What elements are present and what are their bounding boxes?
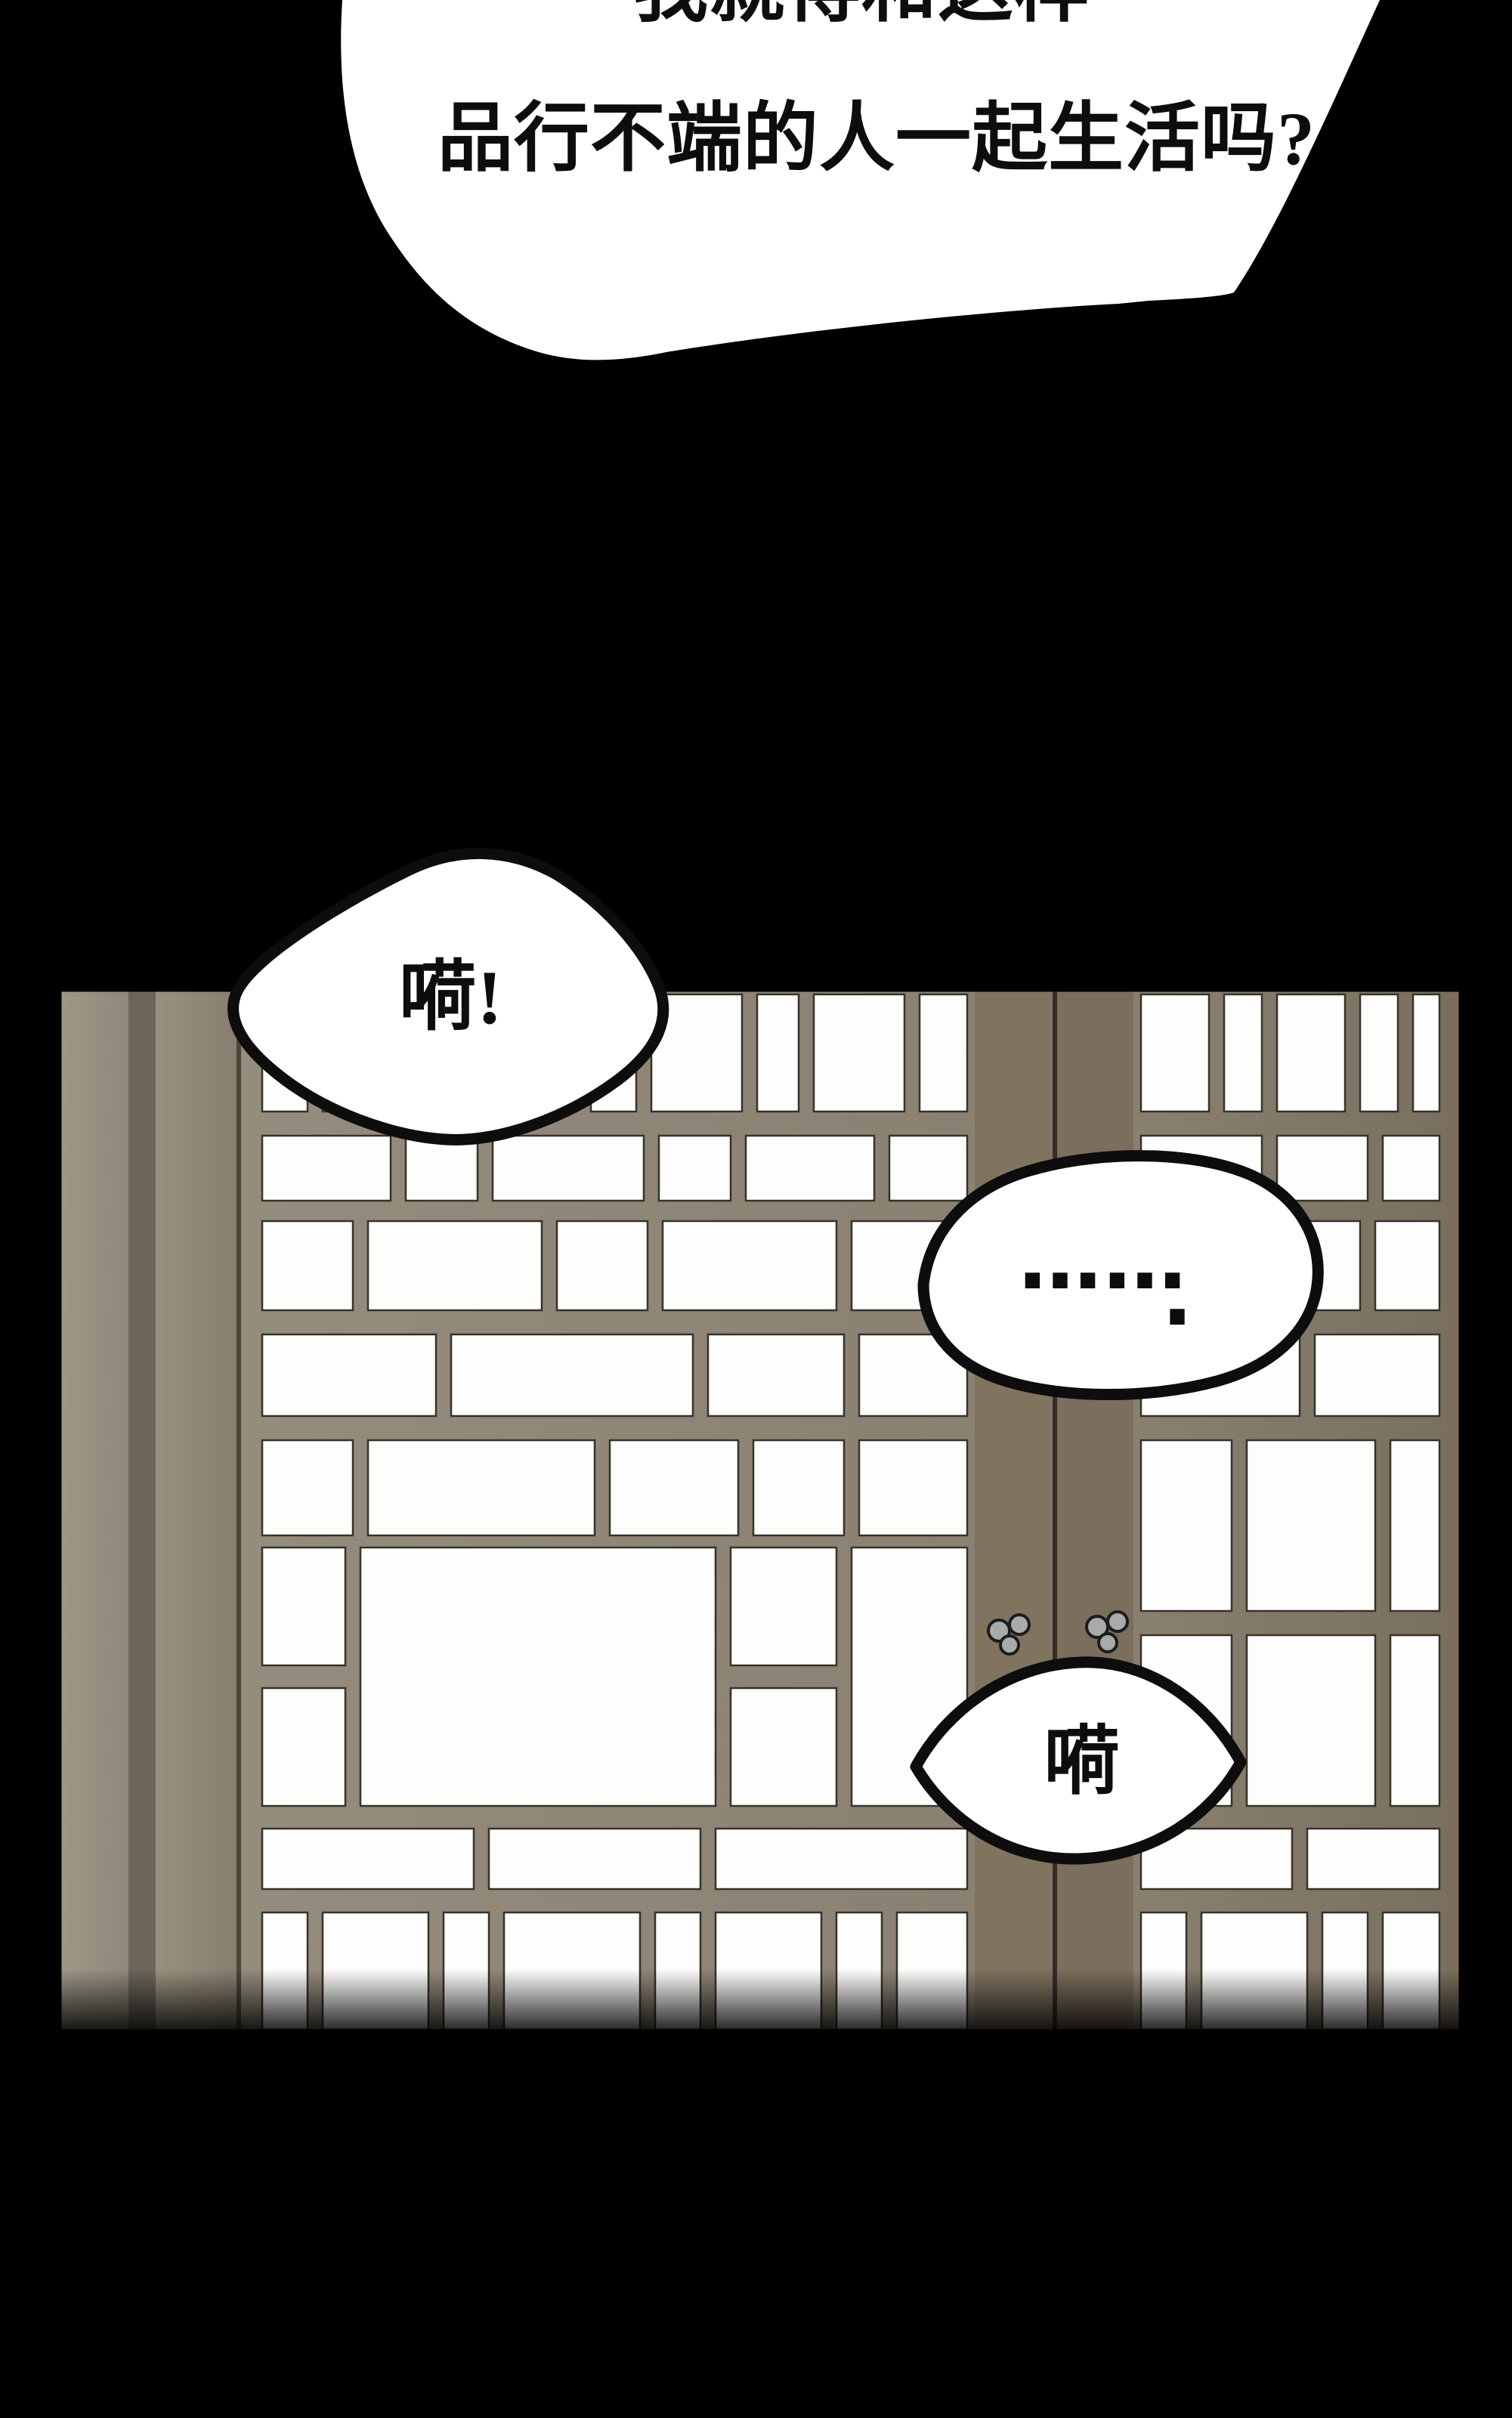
huff-bubble-text: 嗬 [969, 1721, 1195, 1803]
top-speech-bubble-shape [0, 0, 1512, 423]
top-bubble-line2: 品行不端的人一起生活吗? [385, 98, 1368, 180]
silence-bubble-period: . [1155, 1254, 1200, 1337]
left-post [57, 987, 128, 2034]
door-knob [1010, 1615, 1029, 1634]
bottom-shadow [57, 1969, 1464, 2034]
left-post-stripe [128, 987, 156, 2034]
comic-page: 我就得和这样 品行不端的人一起生活吗? [0, 0, 1512, 2418]
top-bubble-line1: 我就得和这样 [408, 0, 1315, 30]
gasp-bubble-text: 嗬! [338, 957, 564, 1040]
door-knob [1108, 1612, 1127, 1631]
big-square-pane [360, 1548, 716, 1806]
